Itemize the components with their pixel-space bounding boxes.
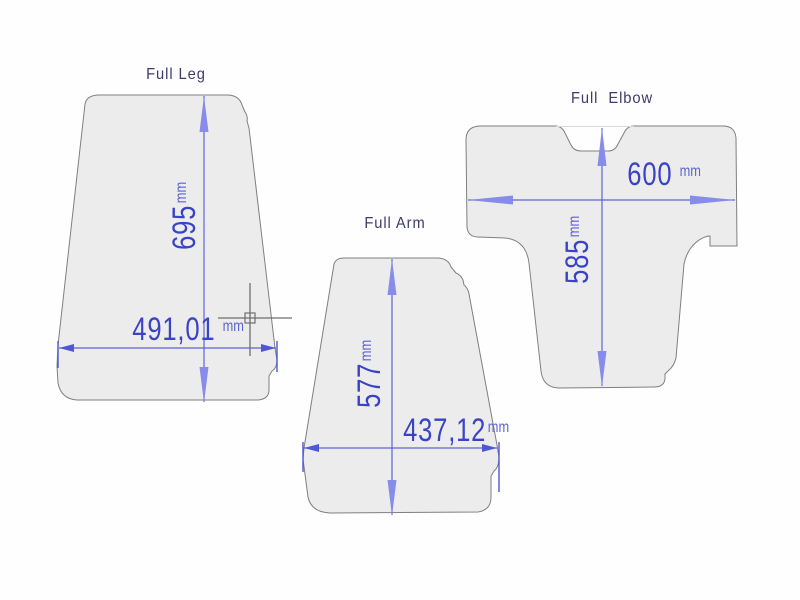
full-elbow-height-dimension-label: 585mm — [545, 216, 609, 298]
full-leg-height-dimension-label: 695mm — [152, 182, 216, 264]
full-elbow-title: Full Elbow — [571, 91, 653, 107]
full-leg-height-unit: mm — [173, 182, 190, 203]
full-arm-title: Full Arm — [364, 216, 425, 232]
full-leg-width-dimension-label: 491,01mm — [118, 297, 244, 361]
full-elbow-height-arrow-up — [598, 128, 607, 166]
full-leg-width-value: 491,01 — [132, 311, 215, 347]
full-elbow-width-value: 600 — [627, 156, 672, 192]
full-leg-height-value: 695 — [166, 205, 202, 250]
full-elbow-width-unit: mm — [680, 163, 701, 180]
full-arm-height-unit: mm — [358, 340, 375, 361]
full-elbow-width-dimension-label: 600mm — [613, 142, 701, 206]
cad-drawing-canvas: Full Leg Full Arm Full Elbow 695mm 491,0… — [0, 0, 800, 600]
full-arm-shape — [303, 258, 499, 513]
full-arm-width-unit: mm — [488, 419, 509, 436]
full-arm-width-dimension-label: 437,12mm — [389, 398, 509, 462]
full-elbow-height-value: 585 — [559, 239, 595, 284]
full-leg-title: Full Leg — [146, 67, 206, 83]
full-arm-height-value: 577 — [351, 363, 387, 408]
full-leg-width-unit: mm — [223, 318, 244, 335]
full-elbow-height-unit: mm — [566, 216, 583, 237]
full-arm-width-value: 437,12 — [403, 412, 486, 448]
